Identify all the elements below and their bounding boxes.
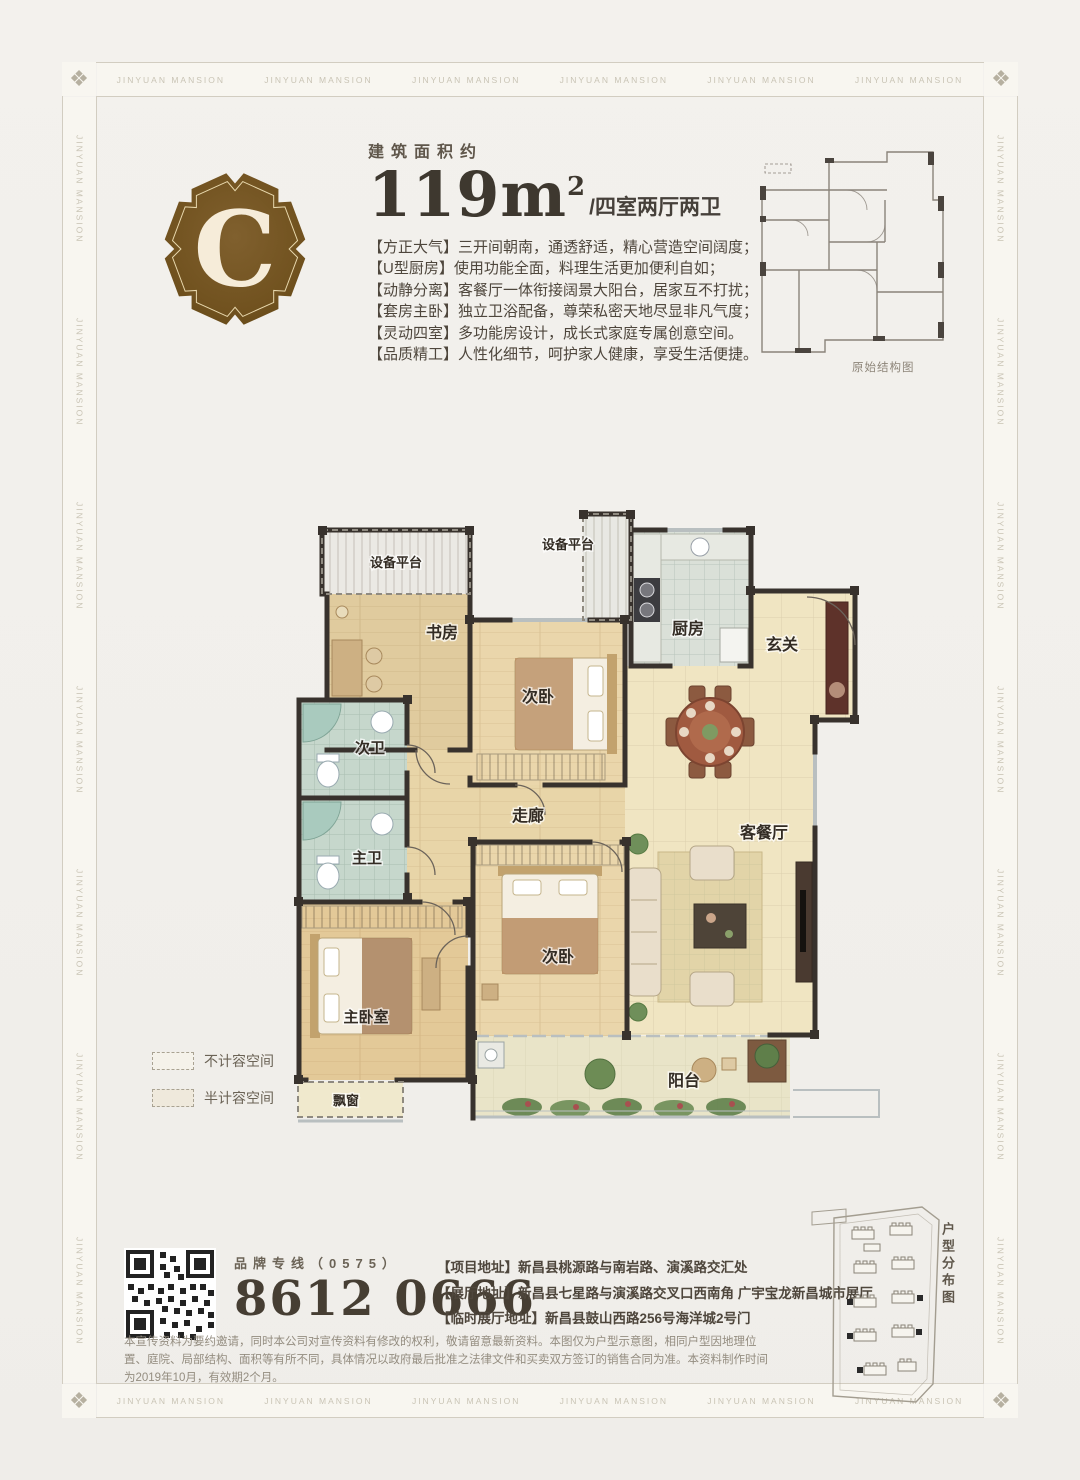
mini-plan-wall-blocks bbox=[760, 152, 944, 353]
feature-item: 【品质精工】人性化细节，呵护家人健康，享受生活便捷。 bbox=[368, 344, 748, 365]
legend-item: 不计容空间 bbox=[152, 1051, 274, 1071]
legend-item: 半计容空间 bbox=[152, 1088, 274, 1108]
room-label-equip-top: 设备平台 bbox=[542, 537, 594, 552]
feature-item: 【套房主卧】独立卫浴配备，尊荣私密天地尽显非凡气度； bbox=[368, 301, 748, 322]
watermark-band-left: JINYUAN MANSIONJINYUAN MANSIONJINYUAN MA… bbox=[63, 97, 96, 1383]
legend-swatch-uncounted bbox=[152, 1052, 194, 1070]
feature-item: 【灵动四室】多功能房设计，成长式家庭专属创意空间。 bbox=[368, 323, 748, 344]
site-buildings bbox=[852, 1223, 916, 1375]
watermark-band-right: JINYUAN MANSIONJINYUAN MANSIONJINYUAN MA… bbox=[984, 97, 1017, 1383]
unit-type-badge: C bbox=[160, 170, 310, 328]
main-floor-plan: 设备平台 设备平台 书房 次卧 厨房 玄关 次卫 主卫 走廊 客餐厅 主卧室 次… bbox=[270, 490, 950, 1155]
floorplan-poster: JINYUAN MANSIONJINYUAN MANSIONJINYUAN MA… bbox=[0, 0, 1080, 1480]
corner-ornament-icon: ❖ bbox=[62, 1384, 96, 1418]
feature-item: 【U型厨房】使用功能全面，料理生活更加便利自如； bbox=[368, 258, 748, 279]
legend-swatch-halfcounted bbox=[152, 1089, 194, 1107]
room-label-entry: 玄关 bbox=[766, 635, 798, 654]
room-label-bedroom-bottom: 次卧 bbox=[542, 947, 574, 966]
watermark-text: JINYUAN MANSION bbox=[117, 75, 225, 85]
original-structure-plan bbox=[737, 142, 957, 367]
legend-label: 半计容空间 bbox=[204, 1088, 274, 1108]
legend-label: 不计容空间 bbox=[204, 1051, 274, 1071]
disclaimer-text: 本宣传资料为要约邀请，同时本公司对宣传资料有修改的权利，敬请留意最新资料。本图仅… bbox=[124, 1333, 772, 1387]
area-line: 119m 2 /四室两厅两卫 bbox=[368, 164, 748, 226]
room-label-master: 主卧室 bbox=[343, 1008, 388, 1026]
area-superscript: 2 bbox=[567, 174, 585, 200]
header: 建筑面积约 119m 2 /四室两厅两卫 【方正大气】三开间朝南，通透舒适，精心… bbox=[368, 138, 748, 365]
corner-ornament-icon: ❖ bbox=[984, 1384, 1018, 1418]
room-label-bedroom-top: 次卧 bbox=[522, 687, 554, 706]
feature-list: 【方正大气】三开间朝南，通透舒适，精心营造空间阔度； 【U型厨房】使用功能全面，… bbox=[368, 237, 748, 365]
mini-plan-caption: 原始结构图 bbox=[852, 359, 915, 375]
room-label-study: 书房 bbox=[426, 623, 458, 642]
badge-letter: C bbox=[194, 187, 277, 310]
layout-type: /四室两厅两卫 bbox=[589, 191, 721, 226]
feature-item: 【动静分离】客餐厅一体衔接阔景大阳台，居家互不打扰； bbox=[368, 280, 748, 301]
room-label-bath-second: 次卫 bbox=[355, 739, 385, 757]
room-label-bath-master: 主卫 bbox=[352, 849, 382, 867]
corner-ornament-icon: ❖ bbox=[62, 62, 96, 96]
room-label-balcony: 阳台 bbox=[668, 1071, 700, 1090]
area-value: 119m bbox=[368, 164, 567, 226]
room-label-kitchen: 厨房 bbox=[672, 619, 704, 638]
watermark-band-top: JINYUAN MANSIONJINYUAN MANSIONJINYUAN MA… bbox=[97, 63, 983, 96]
room-label-living: 客餐厅 bbox=[740, 823, 788, 842]
room-label-equip-left: 设备平台 bbox=[370, 555, 422, 570]
room-label-bay-window: 飘窗 bbox=[333, 1093, 359, 1108]
site-distribution-plan bbox=[806, 1202, 958, 1417]
corner-ornament-icon: ❖ bbox=[984, 62, 1018, 96]
site-plan-caption: 户型分布图 bbox=[938, 1222, 957, 1307]
feature-item: 【方正大气】三开间朝南，通透舒适，精心营造空间阔度； bbox=[368, 237, 748, 258]
room-label-corridor: 走廊 bbox=[511, 806, 544, 825]
legend: 不计容空间 半计容空间 bbox=[152, 1051, 274, 1125]
qr-code bbox=[124, 1248, 216, 1340]
